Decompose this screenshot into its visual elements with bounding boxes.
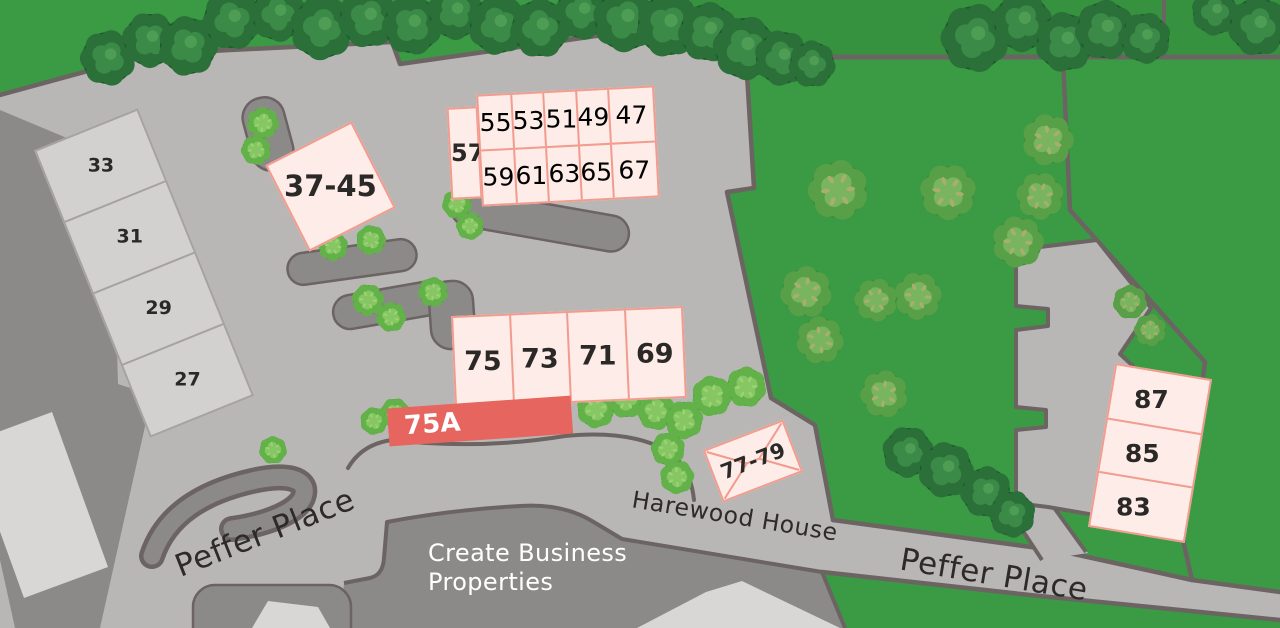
brand-line-1: Create Business xyxy=(428,539,627,568)
unit-75[interactable]: 75 xyxy=(453,316,512,406)
unit-label: 61 xyxy=(516,161,548,190)
unit-53[interactable]: 53 xyxy=(510,93,545,148)
brand-line-2: Properties xyxy=(428,568,627,597)
unit-71[interactable]: 71 xyxy=(566,311,627,401)
unit-label: 83 xyxy=(1116,494,1151,519)
unit-47[interactable]: 47 xyxy=(607,88,655,143)
unit-label: 59 xyxy=(483,163,515,192)
unit-row: 5553514947 xyxy=(478,88,655,150)
unit-label: 51 xyxy=(545,104,577,133)
unit-61[interactable]: 61 xyxy=(513,148,548,203)
unit-65[interactable]: 65 xyxy=(578,145,613,200)
site-plan-map: Peffer Place Harewood House Peffer Place… xyxy=(0,0,1280,628)
unit-label: 31 xyxy=(116,228,142,247)
unit-label: 63 xyxy=(548,159,580,188)
unit-row: 5961636567 xyxy=(481,140,658,204)
unit-49[interactable]: 49 xyxy=(575,90,610,145)
unit-label: 75A xyxy=(403,409,461,439)
unit-label: 67 xyxy=(619,156,651,185)
unit-label: 37-45 xyxy=(284,172,377,201)
terrace-75-69: 75737169 xyxy=(451,306,687,408)
unit-label: 65 xyxy=(580,158,612,187)
unit-label: 27 xyxy=(174,371,200,390)
unit-59[interactable]: 59 xyxy=(481,150,516,205)
unit-label: 55 xyxy=(480,108,512,137)
unit-69[interactable]: 69 xyxy=(624,308,685,398)
block-47-67: 55535149475961636567 xyxy=(476,85,660,206)
unit-label: 33 xyxy=(87,156,113,175)
brand-text: Create Business Properties xyxy=(428,539,627,597)
unit-55[interactable]: 55 xyxy=(478,95,513,150)
unit-label: 49 xyxy=(577,103,609,132)
unit-67[interactable]: 67 xyxy=(610,142,658,197)
unit-label: 69 xyxy=(636,340,674,367)
plot-57: 57 xyxy=(446,106,482,199)
unit-label: 71 xyxy=(579,342,617,369)
unit-label: 85 xyxy=(1125,440,1160,465)
unit-label: 75 xyxy=(464,347,502,374)
unit-label: 53 xyxy=(513,106,545,135)
unit-label: 87 xyxy=(1134,387,1169,412)
unit-63[interactable]: 63 xyxy=(545,146,580,201)
unit-73[interactable]: 73 xyxy=(509,313,570,403)
unit-label: 73 xyxy=(521,345,559,372)
unit-label: 29 xyxy=(145,299,171,318)
unit-label: 47 xyxy=(616,101,648,130)
unit-51[interactable]: 51 xyxy=(543,92,578,147)
